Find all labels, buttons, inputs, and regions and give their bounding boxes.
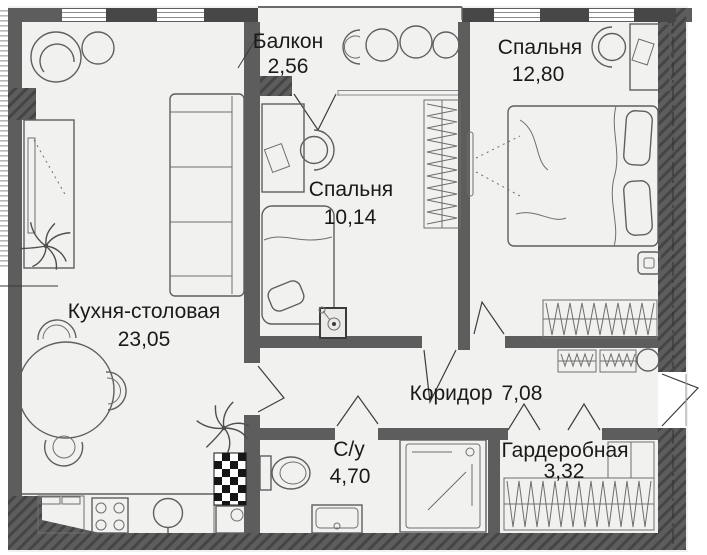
label-corridor-name: Коридор: [410, 382, 493, 405]
wall-bathroom-wardrobe-divider: [488, 428, 500, 533]
label-bedroom12-area: 12,80: [512, 63, 565, 86]
insulation-ticks: [0, 8, 8, 270]
label-kitchen-area: 23,05: [118, 328, 171, 351]
wall-kitchen-right-upper: [244, 22, 260, 363]
label-balcony-name: Балкон: [253, 30, 323, 53]
wall-bathroom-top-left: [260, 428, 335, 440]
wall-right-upper: [658, 8, 686, 372]
label-bedroom12-name: Спальня: [498, 36, 582, 59]
floor-outlet: [319, 307, 346, 338]
label-wardrobe-area: 3,32: [544, 460, 585, 483]
window-kitchen-2: [157, 9, 204, 21]
window-pier: [462, 8, 494, 22]
label-balcony-area: 2,56: [268, 55, 309, 78]
window-pier: [634, 8, 676, 22]
wall-left: [8, 8, 22, 533]
window-bedroom-1: [494, 9, 540, 21]
floor-plan-drawing: Балкон 2,56 Спальня 12,80 Спальня 10,14 …: [0, 0, 707, 555]
entrance-opening: [658, 372, 686, 428]
window-bedroom-2: [589, 9, 634, 21]
wall-balcony-step: [260, 76, 292, 96]
label-corridor-area: 7,08: [502, 382, 543, 405]
label-bedroom10-name: Спальня: [309, 178, 393, 201]
wall-right-lower: [658, 428, 686, 550]
label-corridor: Коридор7,08: [410, 382, 543, 405]
floor-plan: Балкон 2,56 Спальня 12,80 Спальня 10,14 …: [0, 0, 707, 555]
window-pier: [106, 8, 157, 22]
wall-pier-left: [8, 88, 36, 120]
label-wardrobe-name: Гардеробная: [501, 439, 628, 462]
window-pier: [540, 8, 589, 22]
wall-bottom: [22, 533, 686, 550]
window-kitchen-1: [62, 9, 106, 21]
window-pier: [204, 8, 258, 22]
label-bathroom-area: 4,70: [330, 465, 371, 488]
wall-bathroom-top-right: [378, 428, 490, 440]
label-kitchen-name: Кухня-столовая: [68, 300, 220, 323]
vent-shaft: [214, 453, 246, 505]
label-bedroom10-area: 10,14: [324, 206, 377, 229]
label-bathroom-name: С/у: [333, 438, 365, 461]
